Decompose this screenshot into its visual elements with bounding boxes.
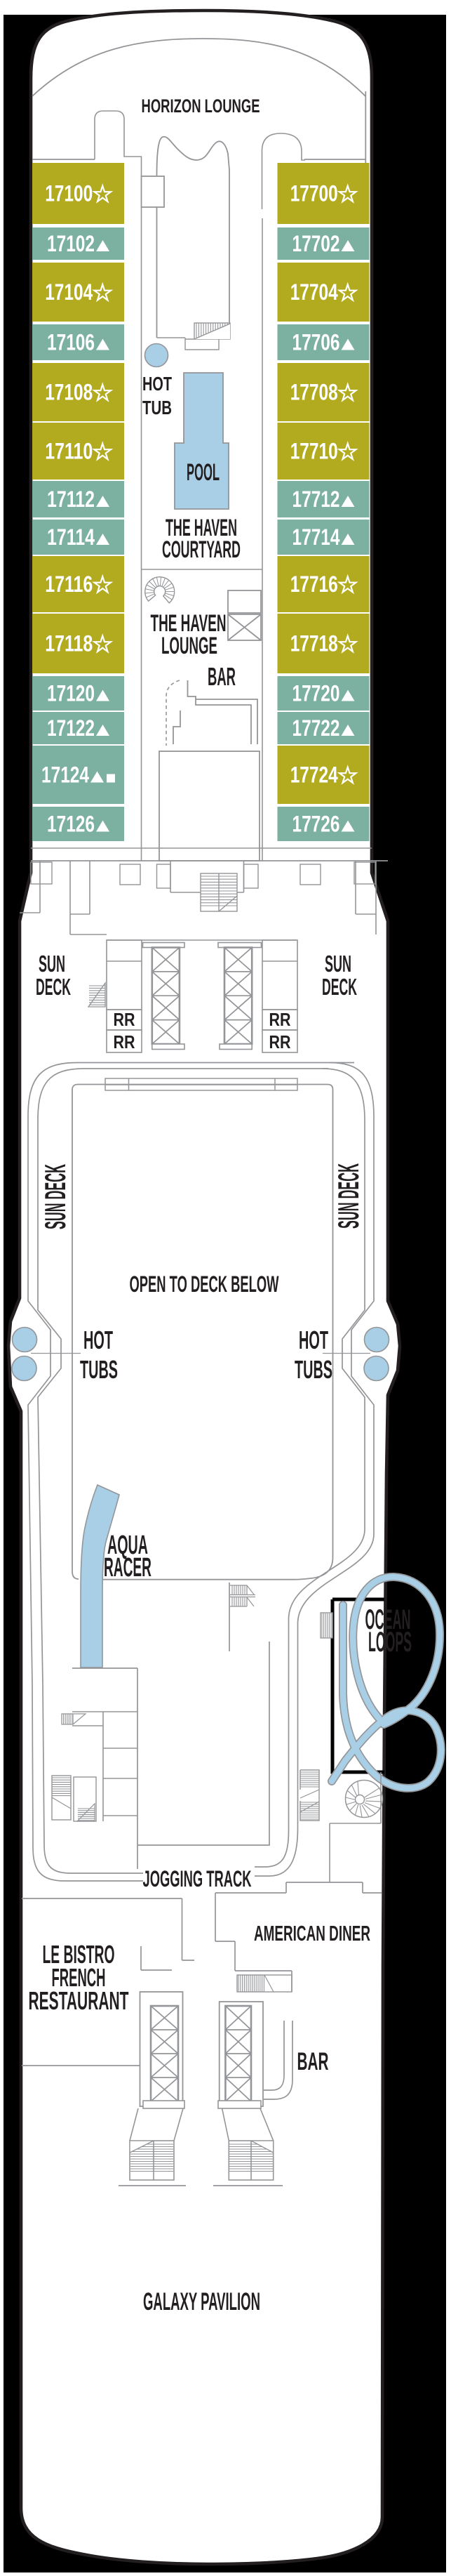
svg-text:17720: 17720 [292, 681, 340, 706]
svg-text:17702: 17702 [292, 231, 340, 256]
svg-text:17708: 17708 [290, 380, 338, 405]
svg-text:17114: 17114 [47, 524, 95, 550]
svg-text:TUBS: TUBS [295, 1355, 332, 1384]
svg-text:17704: 17704 [290, 279, 338, 305]
svg-text:HOT: HOT [83, 1326, 113, 1354]
svg-text:RR: RR [269, 1009, 291, 1030]
svg-text:POOL: POOL [187, 459, 220, 486]
svg-text:17102: 17102 [47, 231, 95, 256]
svg-text:RESTAURANT: RESTAURANT [29, 1986, 129, 2015]
svg-text:17716: 17716 [290, 572, 338, 597]
svg-text:17106: 17106 [47, 330, 95, 355]
svg-text:17124: 17124 [41, 762, 89, 788]
svg-text:SUN DECK: SUN DECK [332, 1163, 365, 1229]
svg-text:TUB: TUB [142, 397, 172, 418]
svg-text:OPEN TO DECK BELOW: OPEN TO DECK BELOW [130, 1272, 279, 1297]
svg-text:RACER: RACER [104, 1553, 152, 1583]
svg-text:17714: 17714 [292, 524, 340, 550]
svg-text:SUN: SUN [39, 951, 65, 977]
svg-text:17118: 17118 [45, 631, 93, 656]
svg-text:COURTYARD: COURTYARD [162, 536, 241, 563]
svg-text:GALAXY PAVILION: GALAXY PAVILION [143, 2288, 260, 2316]
svg-text:17722: 17722 [292, 715, 340, 741]
svg-text:TUBS: TUBS [80, 1355, 118, 1384]
svg-text:LOOPS: LOOPS [368, 1627, 412, 1658]
svg-text:17120: 17120 [47, 681, 95, 706]
svg-text:RR: RR [114, 1031, 135, 1052]
svg-text:17712: 17712 [292, 487, 340, 512]
svg-text:17718: 17718 [290, 631, 338, 656]
svg-text:17100: 17100 [45, 181, 93, 206]
svg-text:17700: 17700 [290, 181, 338, 206]
svg-text:DECK: DECK [36, 974, 71, 1000]
svg-text:DECK: DECK [322, 974, 357, 1000]
svg-text:RR: RR [114, 1009, 135, 1030]
svg-text:HORIZON LOUNGE: HORIZON LOUNGE [142, 95, 260, 117]
svg-text:17116: 17116 [45, 572, 93, 597]
svg-text:JOGGING TRACK: JOGGING TRACK [143, 1866, 252, 1891]
svg-text:BAR: BAR [208, 662, 236, 691]
svg-text:HOT: HOT [299, 1326, 328, 1354]
svg-text:LOUNGE: LOUNGE [161, 633, 217, 659]
svg-text:SUN DECK: SUN DECK [39, 1164, 72, 1229]
svg-text:AMERICAN DINER: AMERICAN DINER [254, 1921, 370, 1946]
svg-text:SUN: SUN [325, 951, 351, 977]
svg-text:17710: 17710 [290, 439, 338, 464]
svg-text:17706: 17706 [292, 330, 340, 355]
svg-text:17112: 17112 [47, 487, 95, 512]
svg-text:BAR: BAR [297, 2048, 329, 2075]
svg-text:17726: 17726 [292, 812, 340, 837]
svg-text:17110: 17110 [45, 439, 93, 464]
svg-text:17122: 17122 [47, 715, 95, 741]
svg-text:17104: 17104 [45, 279, 93, 305]
svg-text:17126: 17126 [47, 812, 95, 837]
svg-text:RR: RR [269, 1031, 291, 1052]
svg-text:17108: 17108 [45, 380, 93, 405]
svg-text:HOT: HOT [142, 373, 172, 395]
svg-text:17724: 17724 [290, 762, 338, 788]
